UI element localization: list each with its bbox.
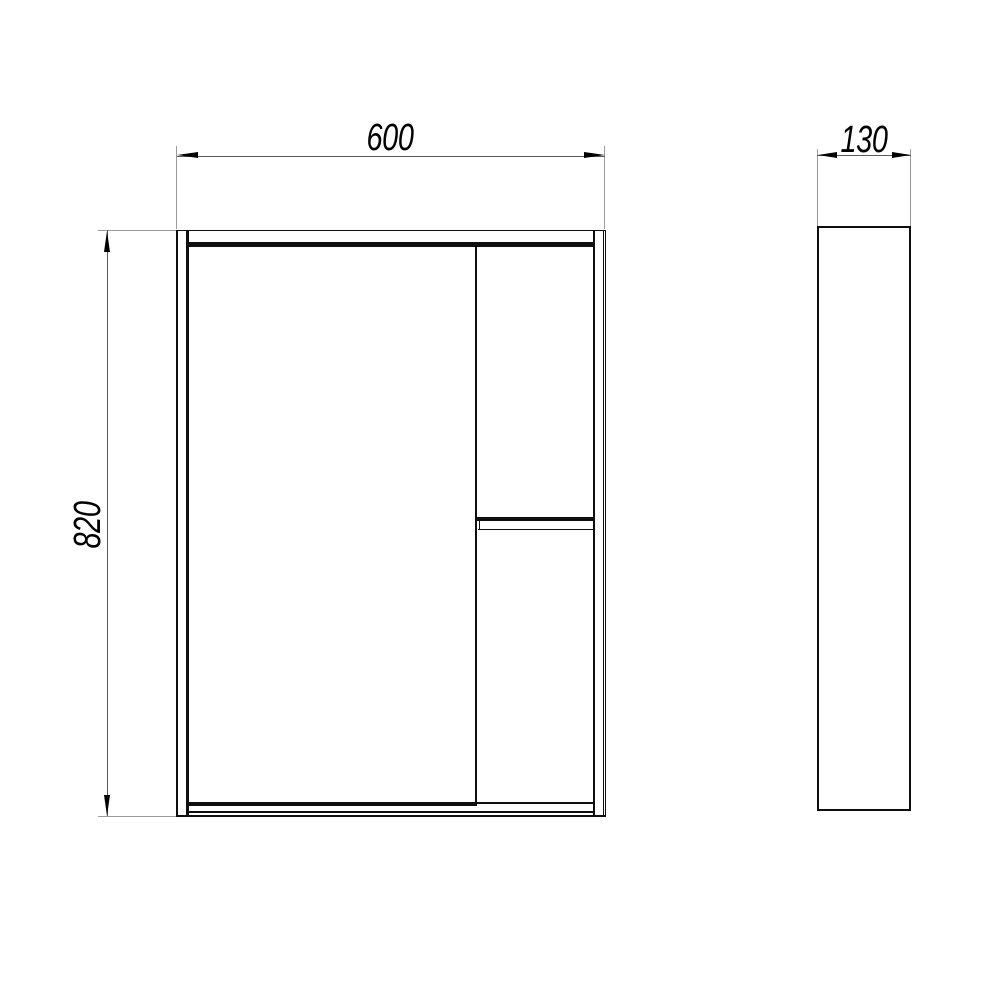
- dim-height-ext-line-bottom: [98, 816, 176, 817]
- shelf-bottom-line: [478, 529, 593, 530]
- dim-width-label: 600: [352, 119, 428, 157]
- technical-drawing-canvas: 600 820 130: [0, 0, 1000, 1000]
- dim-height-arrow-bottom-icon: [104, 795, 110, 816]
- shelf-front-edge: [476, 517, 593, 521]
- shelf-side-tick: [479, 517, 481, 530]
- door-right-edge: [475, 242, 477, 806]
- right-panel-reveal-line: [603, 231, 604, 817]
- dim-width-arrow-right-icon: [584, 152, 605, 158]
- left-panel-inner-line: [186, 231, 189, 817]
- right-panel-inner-line: [593, 231, 595, 817]
- compartment-floor-line: [476, 802, 593, 803]
- dim-depth-ext-line-left: [817, 149, 818, 226]
- dim-width-ext-line-right: [604, 146, 605, 229]
- cabinet-bottom-edge: [176, 815, 607, 817]
- dim-height-arrow-top-icon: [104, 231, 110, 252]
- cabinet-right-edge: [605, 230, 607, 817]
- dim-depth-label: 130: [826, 121, 902, 159]
- dim-height-label: 820: [69, 487, 107, 563]
- door-bottom-shadow-line: [188, 802, 477, 806]
- cabinet-left-edge: [176, 230, 178, 817]
- cabinet-top-edge: [176, 230, 607, 231]
- bottom-rail-line: [188, 811, 593, 813]
- dim-width-ext-line-left: [176, 146, 177, 229]
- top-rail-shadow-line: [188, 242, 593, 247]
- dim-width-arrow-left-icon: [177, 152, 198, 158]
- side-view-outline: [817, 226, 911, 812]
- dim-depth-ext-line-right: [910, 149, 911, 226]
